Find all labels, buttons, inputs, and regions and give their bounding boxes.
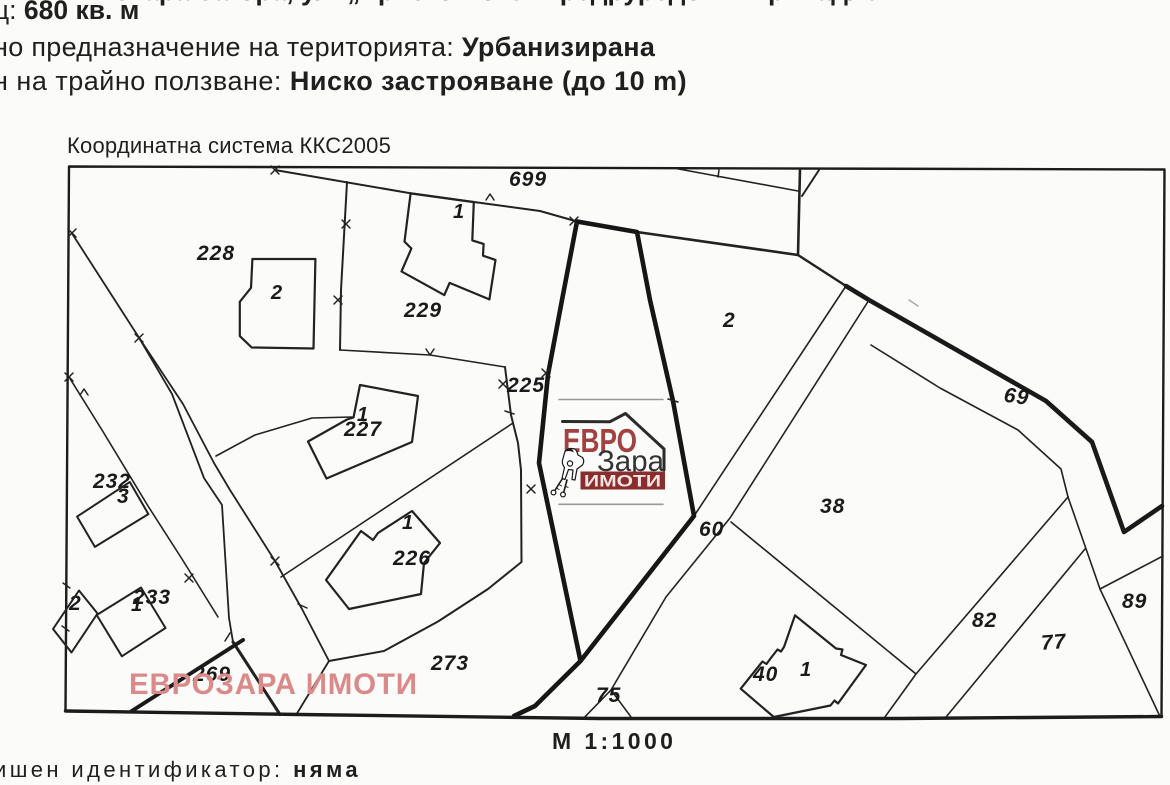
svg-text:60: 60 (699, 518, 724, 541)
svg-text:69: 69 (1002, 384, 1030, 410)
svg-text:40: 40 (752, 663, 778, 686)
svg-text:89: 89 (1122, 590, 1147, 613)
svg-text:1: 1 (402, 512, 413, 534)
svg-text:225: 225 (506, 374, 545, 397)
svg-text:226: 226 (392, 547, 431, 570)
svg-text:75: 75 (596, 684, 621, 707)
svg-text:273: 273 (430, 652, 469, 675)
svg-text:1: 1 (131, 594, 142, 616)
svg-text:ЕВРОЗАРА ИМОТИ: ЕВРОЗАРА ИМОТИ (129, 668, 418, 701)
svg-text:1: 1 (800, 659, 811, 681)
svg-text:ИМОТИ: ИМОТИ (584, 472, 661, 491)
svg-text:1: 1 (453, 201, 464, 223)
svg-text:2: 2 (722, 309, 735, 332)
svg-text:229: 229 (403, 299, 442, 322)
svg-text:699: 699 (509, 168, 547, 191)
svg-text:2: 2 (270, 282, 282, 304)
svg-text:228: 228 (196, 242, 235, 265)
svg-text:38: 38 (820, 495, 845, 518)
svg-text:77: 77 (1040, 630, 1067, 655)
svg-text:82: 82 (972, 609, 997, 632)
svg-text:227: 227 (343, 418, 382, 441)
